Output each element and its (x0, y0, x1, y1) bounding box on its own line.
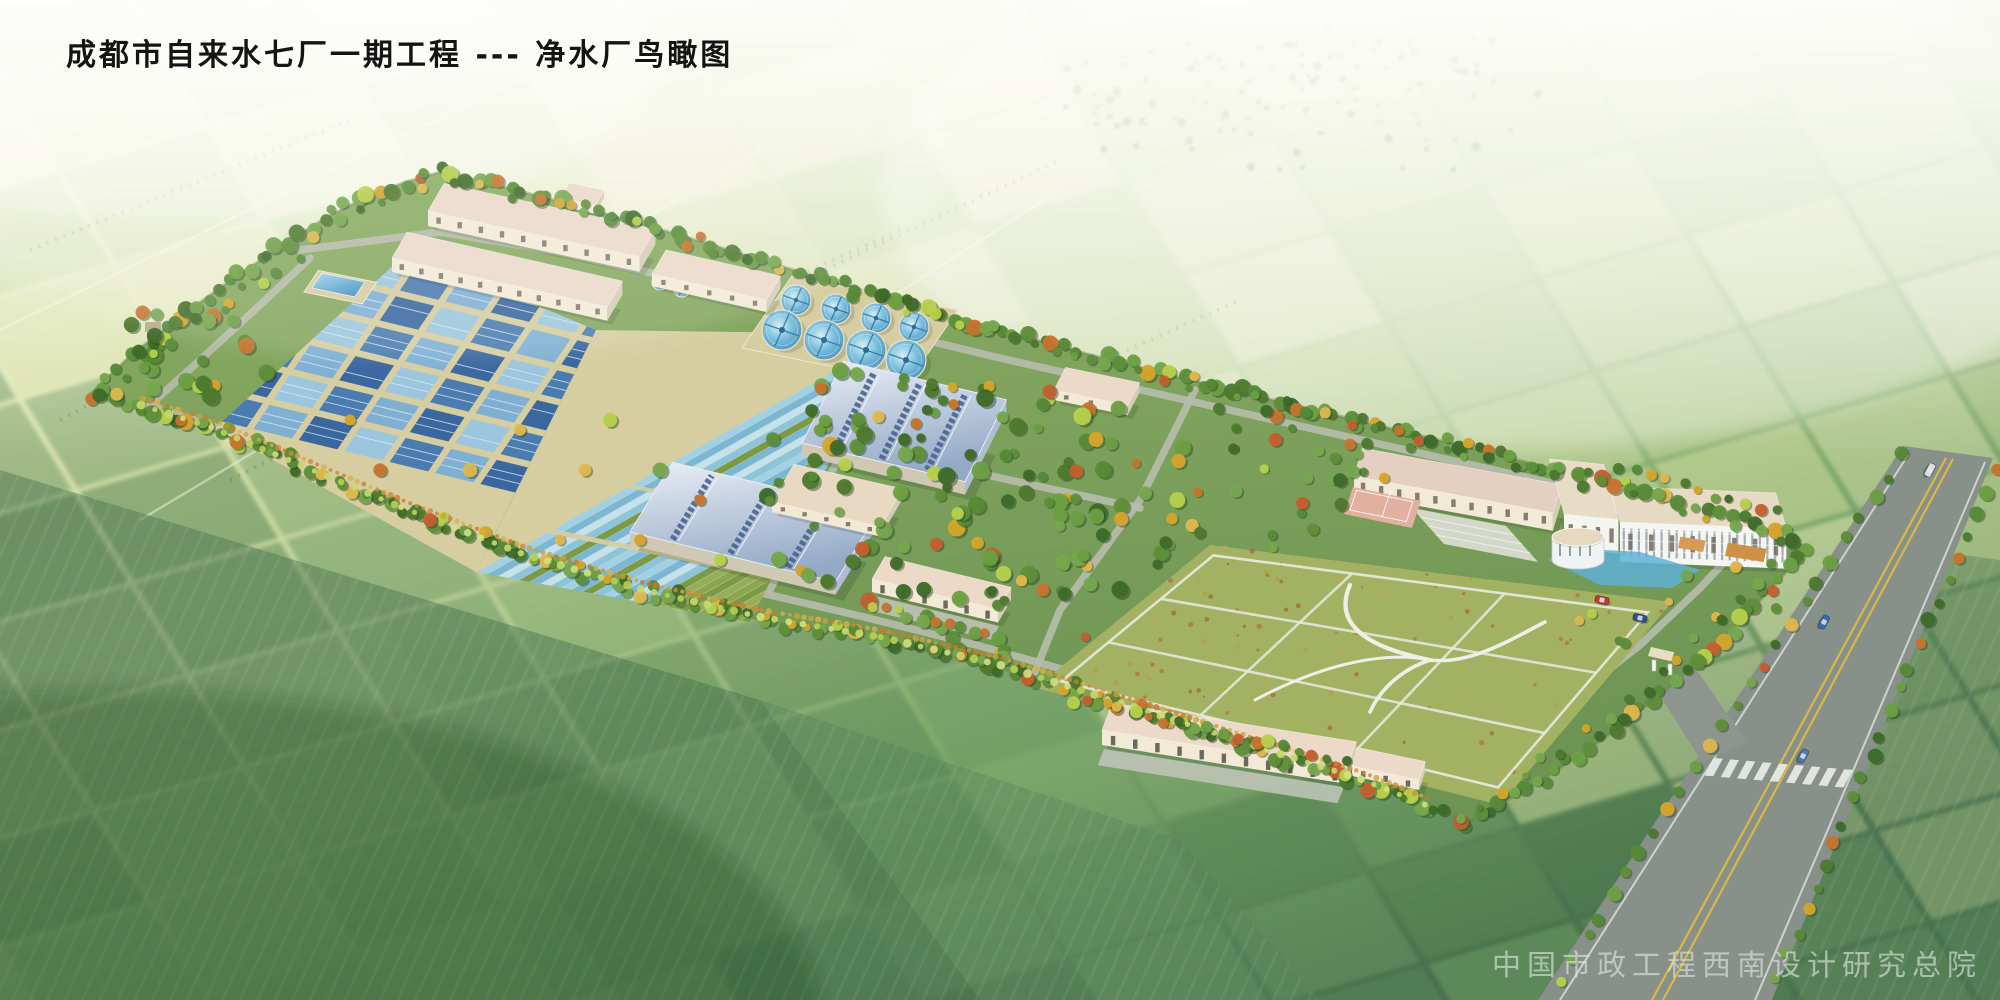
aerial-scene (0, 0, 2000, 1000)
design-institute-credit: 中国市政工程西南设计研究总院 (1492, 942, 1982, 984)
rendering-canvas: 成都市自来水七厂一期工程 --- 净水厂鸟瞰图 中国市政工程西南设计研究总院 (0, 0, 2000, 1000)
drawing-title: 成都市自来水七厂一期工程 --- 净水厂鸟瞰图 (66, 30, 733, 74)
